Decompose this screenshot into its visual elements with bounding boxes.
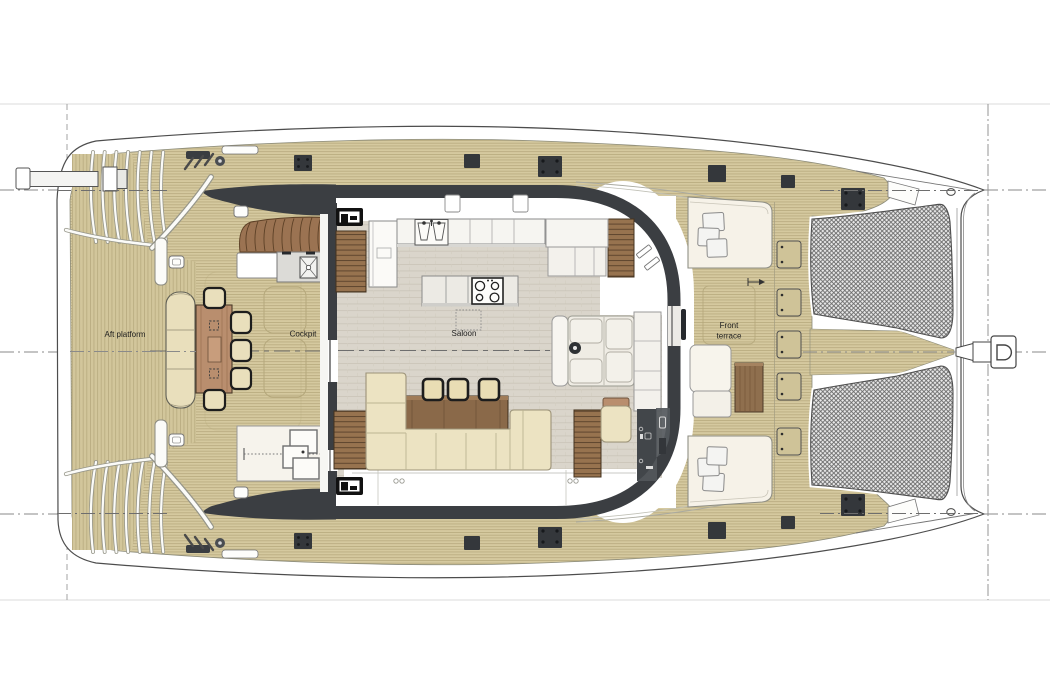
svg-text:Saloon: Saloon [452,329,477,338]
svg-text:Cockpit: Cockpit [290,330,317,339]
svg-text:Front: Front [720,321,739,330]
svg-text:terrace: terrace [717,332,742,341]
svg-text:Aft platform: Aft platform [105,330,146,339]
